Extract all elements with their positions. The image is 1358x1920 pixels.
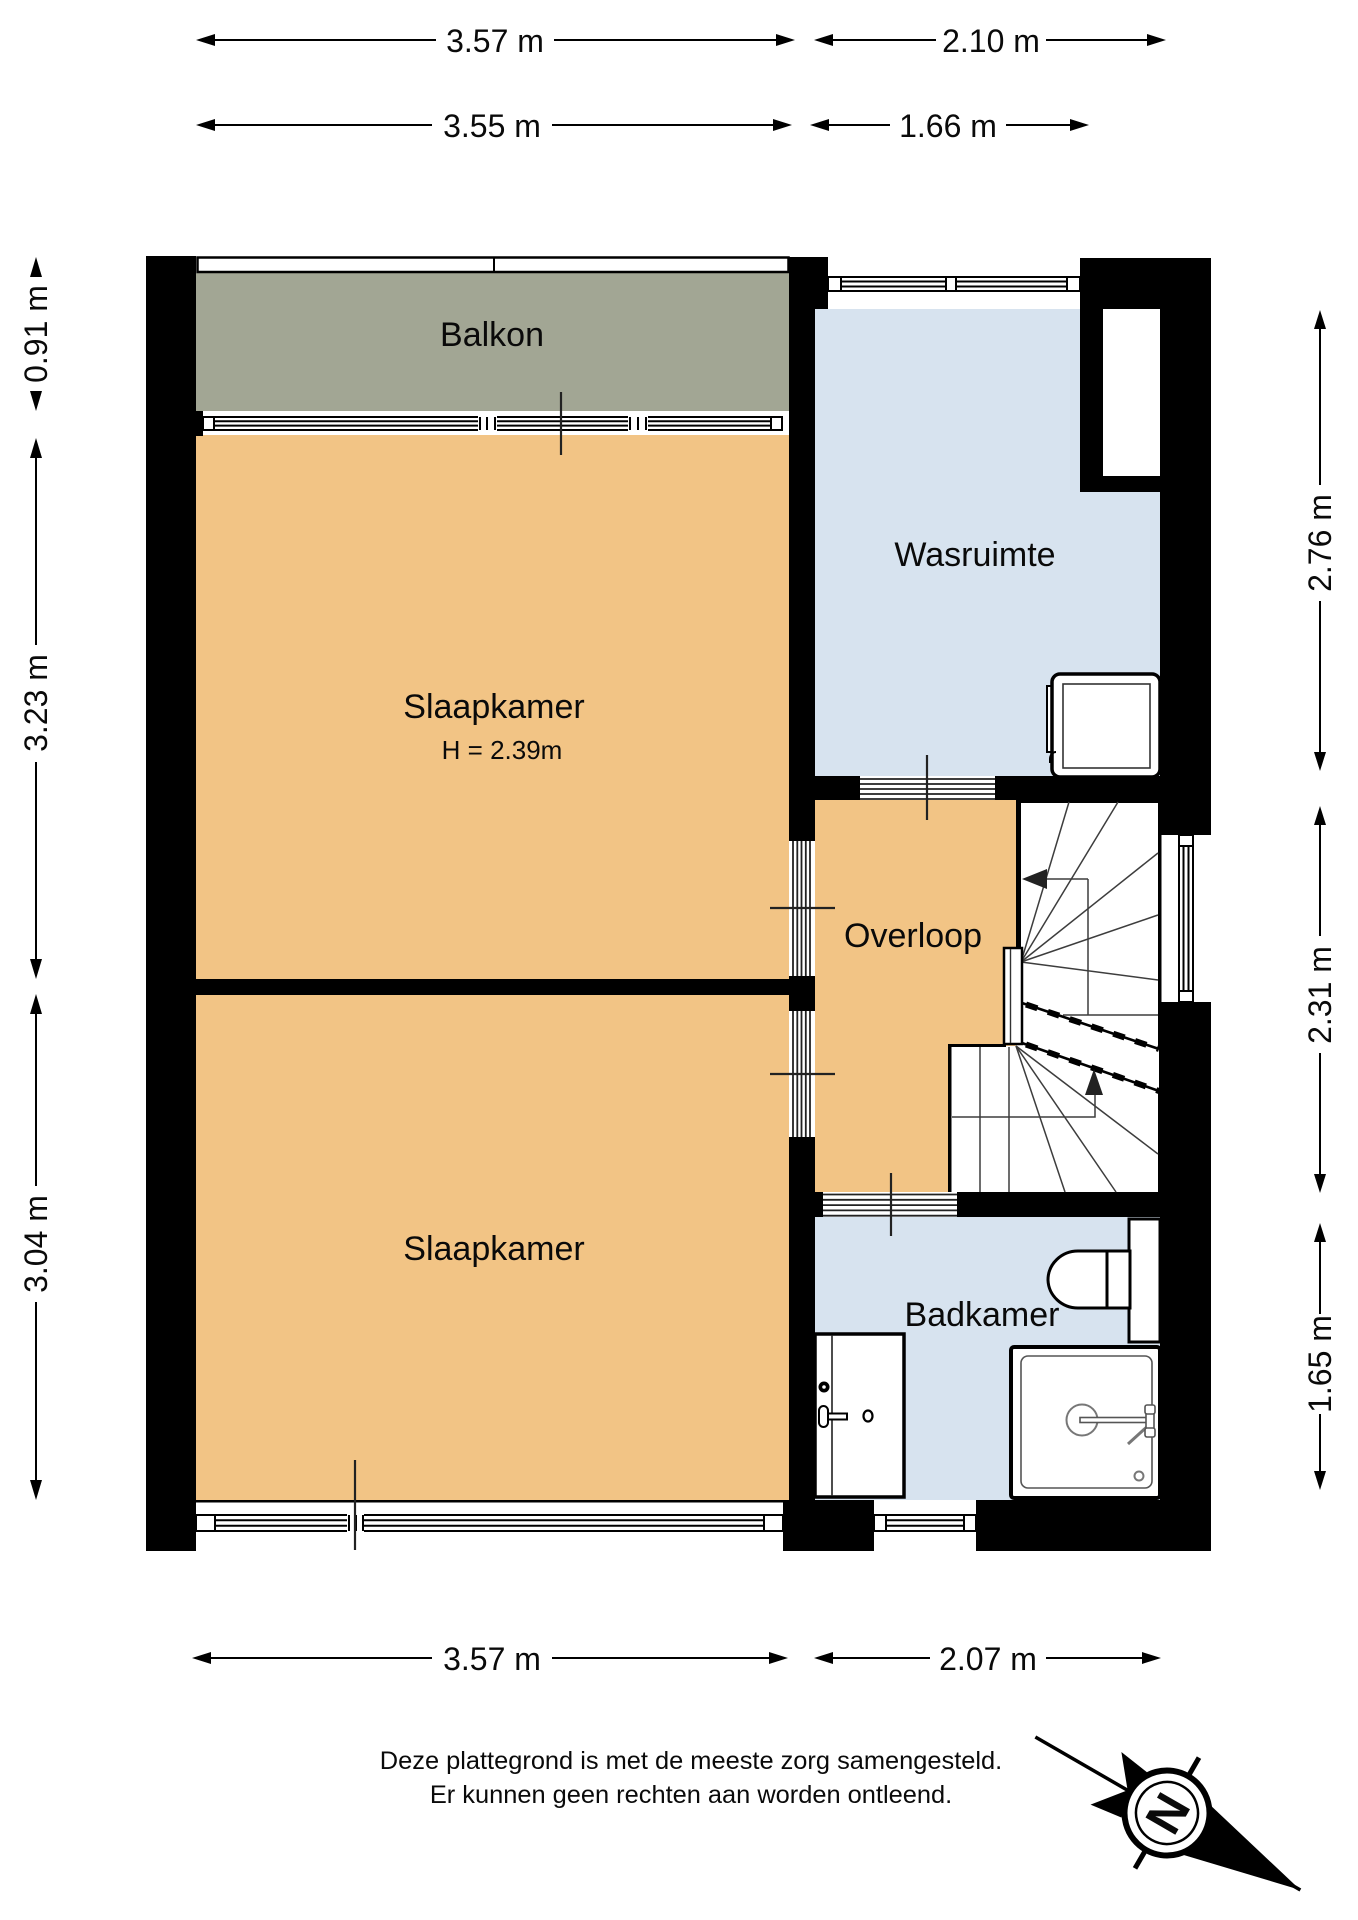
svg-text:Badkamer: Badkamer [905,1296,1060,1334]
svg-text:Deze plattegrond is met de mee: Deze plattegrond is met de meeste zorg s… [380,1747,1002,1775]
svg-text:H = 2.39m: H = 2.39m [442,735,563,765]
svg-text:Balkon: Balkon [440,316,544,354]
svg-text:3.55 m: 3.55 m [443,108,541,144]
svg-text:Er kunnen geen rechten aan wor: Er kunnen geen rechten aan worden ontlee… [430,1781,952,1809]
svg-text:1.65 m: 1.65 m [1302,1315,1338,1413]
svg-text:Slaapkamer: Slaapkamer [403,1230,584,1268]
svg-text:Overloop: Overloop [844,917,982,955]
svg-text:1.66 m: 1.66 m [899,108,997,144]
svg-text:2.31 m: 2.31 m [1302,946,1338,1044]
svg-text:2.07 m: 2.07 m [939,1641,1037,1677]
svg-text:3.57 m: 3.57 m [443,1641,541,1677]
svg-text:3.57 m: 3.57 m [446,23,544,59]
svg-text:2.10 m: 2.10 m [942,23,1040,59]
svg-text:3.04 m: 3.04 m [18,1195,54,1293]
svg-text:2.76 m: 2.76 m [1302,494,1338,592]
svg-text:3.23 m: 3.23 m [18,654,54,752]
svg-text:Wasruimte: Wasruimte [894,536,1055,574]
svg-text:Slaapkamer: Slaapkamer [403,688,584,726]
svg-text:0.91 m: 0.91 m [18,285,54,383]
